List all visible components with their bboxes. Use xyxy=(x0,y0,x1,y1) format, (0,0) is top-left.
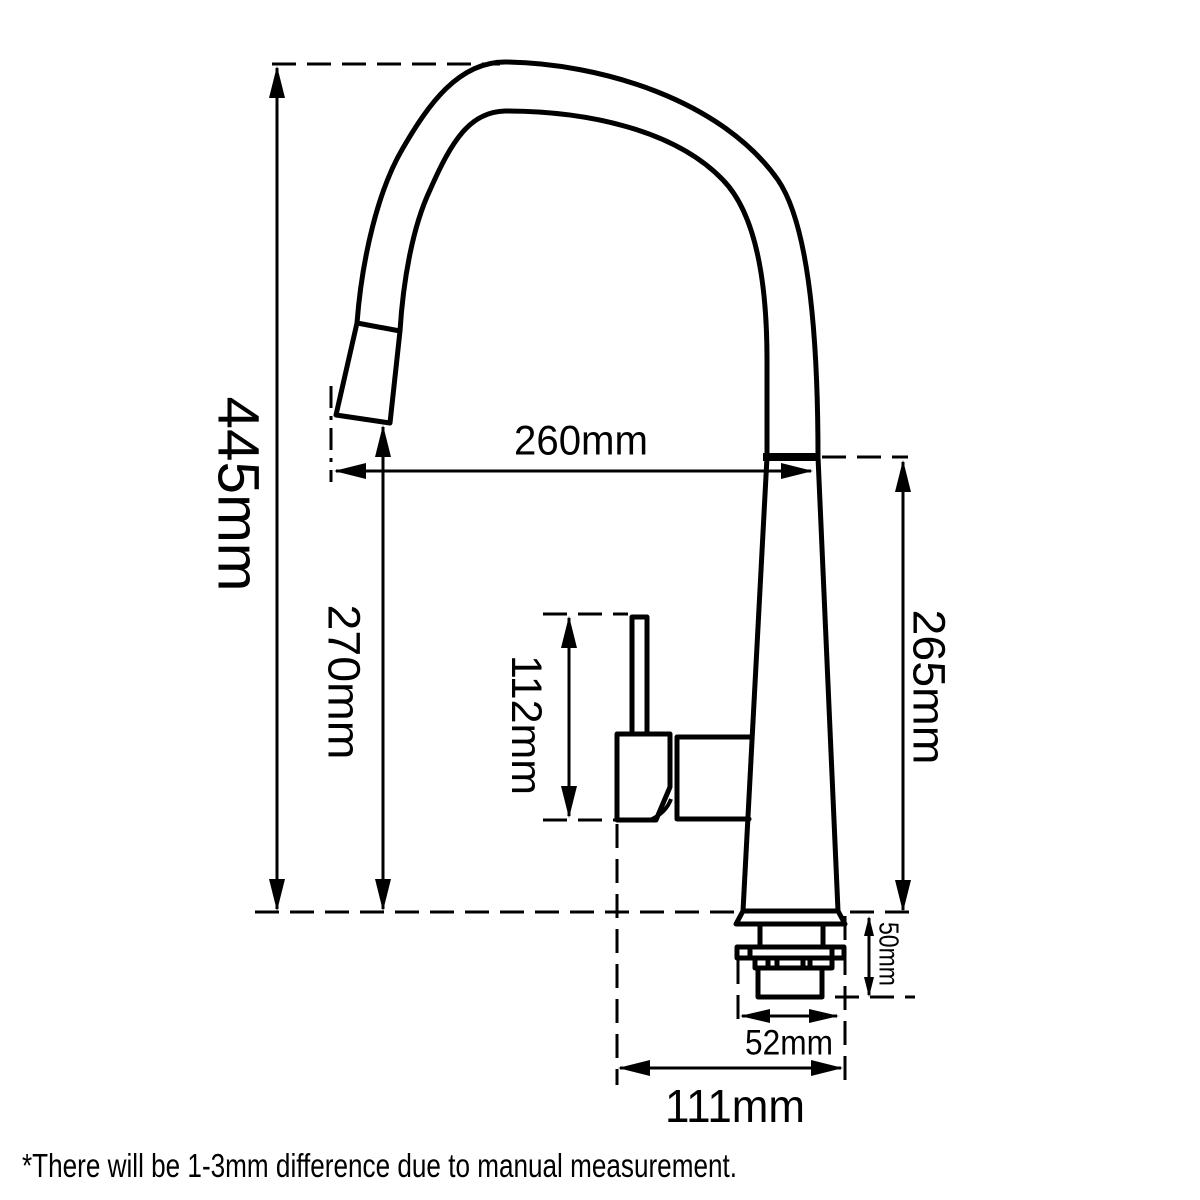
arrowhead-up-icon xyxy=(864,916,874,936)
arrowhead-left-icon xyxy=(740,1009,770,1023)
arrowhead-down-icon xyxy=(269,879,285,911)
body-right-edge xyxy=(818,457,838,911)
handle-height-label: 112mm xyxy=(502,655,550,795)
base-diameter-label: 52mm xyxy=(745,1024,833,1063)
measurement-footnote: *There will be 1-3mm difference due to m… xyxy=(22,1147,737,1184)
arrowhead-up-icon xyxy=(269,66,285,98)
spout-inner-curve xyxy=(400,111,767,457)
technical-drawing-svg: 445mm 270mm 260mm 112mm 265mm 50mm 52mm … xyxy=(0,0,1200,1200)
faucet-outline xyxy=(336,62,845,997)
sprayer-nozzle xyxy=(336,323,400,423)
base-stem xyxy=(760,924,823,947)
extension-lines xyxy=(255,64,915,1085)
arrowhead-left-icon xyxy=(618,1060,650,1076)
arrowhead-right-icon xyxy=(781,463,813,479)
handle-connector xyxy=(677,737,752,819)
mounting-block xyxy=(758,968,822,997)
arrowhead-down-icon xyxy=(864,977,874,997)
spout-reach-label: 260mm xyxy=(514,417,648,464)
deck-thickness-label: 50mm xyxy=(874,922,905,986)
arrowhead-up-icon xyxy=(375,425,391,457)
arrowhead-down-icon xyxy=(895,880,911,912)
handle-lever xyxy=(632,617,647,734)
body-left-edge xyxy=(743,457,767,911)
arrowhead-up-icon xyxy=(895,460,911,492)
arrowhead-left-icon xyxy=(334,463,366,479)
spout-outer-curve xyxy=(357,62,818,457)
dimension-labels: 445mm 270mm 260mm 112mm 265mm 50mm 52mm … xyxy=(206,397,955,1133)
outlet-height-label: 270mm xyxy=(319,605,370,760)
arrowhead-up-icon xyxy=(561,616,577,648)
base-footprint-label: 111mm xyxy=(665,1080,805,1132)
handle-body xyxy=(617,734,670,820)
overall-height-label: 445mm xyxy=(206,397,271,592)
arrowhead-down-icon xyxy=(375,879,391,911)
arrowhead-right-icon xyxy=(809,1009,839,1023)
faucet-dimension-drawing: 445mm 270mm 260mm 112mm 265mm 50mm 52mm … xyxy=(0,0,1200,1200)
body-height-label: 265mm xyxy=(904,610,955,765)
arrowhead-down-icon xyxy=(561,786,577,818)
